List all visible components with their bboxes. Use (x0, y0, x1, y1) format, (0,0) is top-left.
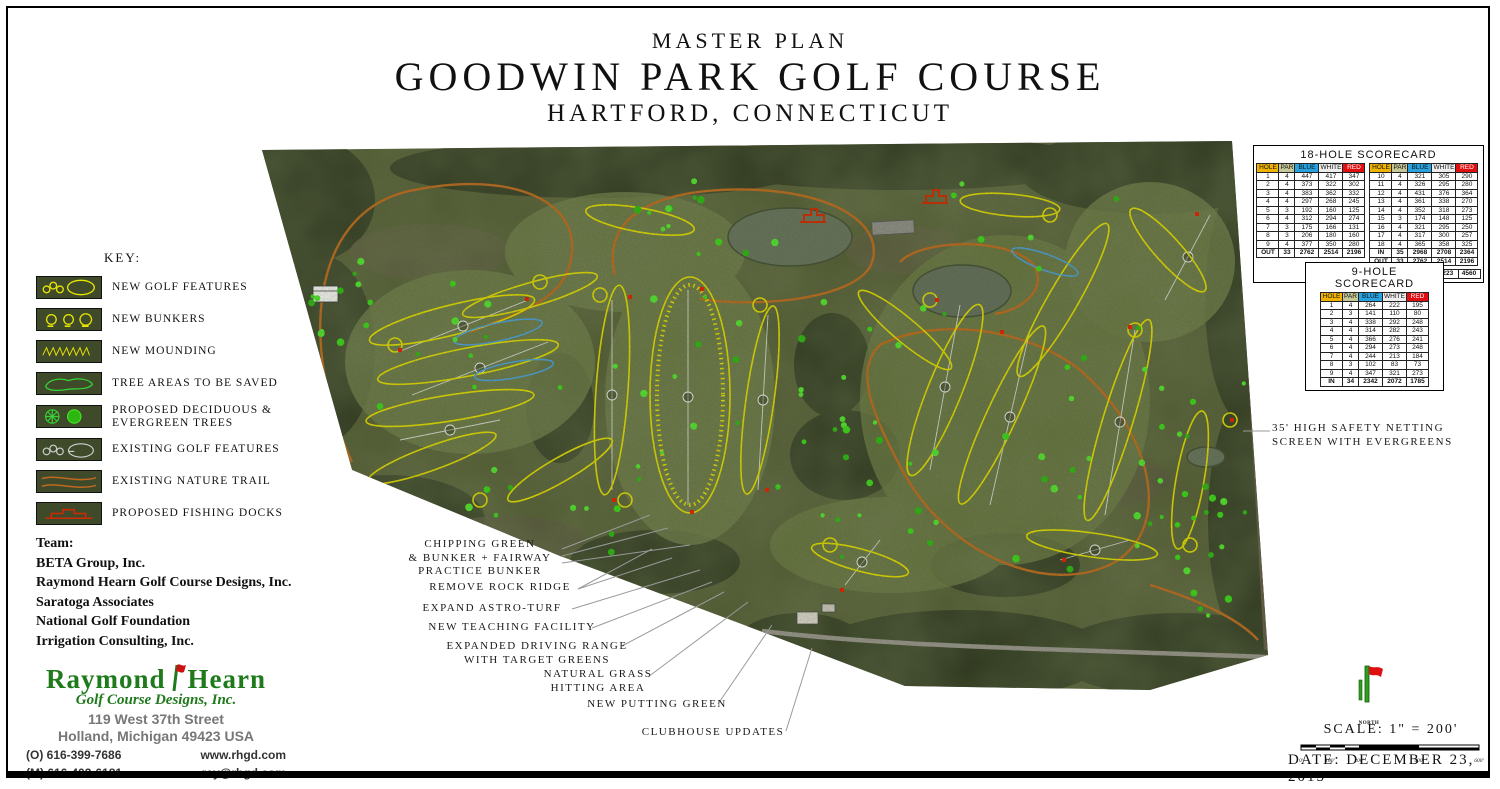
sc-cell: 4 (1343, 352, 1359, 361)
map-callout-line: NEW PUTTING GREEN (587, 698, 727, 712)
scorecard-18-title: 18-HOLE SCORECARD (1258, 149, 1479, 161)
legend-swatch-1 (36, 276, 102, 299)
sc-cell: 131 (1343, 223, 1365, 232)
sc-cell: 184 (1407, 352, 1429, 361)
golf-flag-icon (167, 662, 187, 692)
legend-label: NEW BUNKERS (112, 313, 297, 326)
legend-swatch-2 (36, 308, 102, 331)
sc-cell: 35 (1392, 249, 1408, 258)
sc-cell: 321 (1408, 223, 1432, 232)
sc-cell: 18 (1370, 240, 1392, 249)
scale-text: SCALE: 1" = 200' (1296, 722, 1486, 738)
sc-cell: 347 (1343, 172, 1365, 181)
sc-cell: 268 (1319, 198, 1343, 207)
sc-cell: 270 (1456, 198, 1478, 207)
sc-cell: 148 (1432, 215, 1456, 224)
sc-cell: 4 (1392, 232, 1408, 241)
sc-cell: 17 (1370, 232, 1392, 241)
legend-label: PROPOSED FISHING DOCKS (112, 507, 297, 520)
sc-row: 184365358325 (1370, 240, 1478, 249)
legend-swatch-6 (36, 438, 102, 461)
legend-row: PROPOSED DECIDUOUS & EVERGREEN TREES (36, 404, 316, 429)
map-callout-line: REMOVE ROCK RIDGE (429, 581, 571, 595)
sc-cell: 276 (1383, 335, 1407, 344)
sc-cell: 8 (1257, 232, 1279, 241)
sc-cell: 326 (1408, 181, 1432, 190)
sc-cell: 318 (1432, 206, 1456, 215)
sc-header-cell: PAR (1279, 164, 1295, 173)
sc-cell: 364 (1456, 189, 1478, 198)
sc-cell: 192 (1295, 206, 1319, 215)
legend-row: EXISTING NATURE TRAIL (36, 470, 316, 493)
sc-cell: 280 (1343, 240, 1365, 249)
email-link[interactable]: ray@rhgd.com (202, 766, 286, 781)
sc-row: 34338292248 (1321, 318, 1429, 327)
sc-cell: 166 (1319, 223, 1343, 232)
map-callout-line: CLUBHOUSE UPDATES (642, 726, 785, 740)
sc-cell: 4 (1343, 327, 1359, 336)
sc-cell: 174 (1408, 215, 1432, 224)
sc-cell: 5 (1321, 335, 1343, 344)
sc-row: 114326295280 (1370, 181, 1478, 190)
logo-address-line1: 119 West 37th Street (26, 711, 286, 728)
sc-header-cell: WHITE (1319, 164, 1343, 173)
sc-cell: 280 (1456, 181, 1478, 190)
map-callout: CHIPPING GREEN& BUNKER + FAIRWAYPRACTICE… (409, 538, 552, 579)
tree-dot (381, 525, 388, 532)
sc-row: 73175166131 (1257, 223, 1365, 232)
logo-contacts-row1: (O) 616-399-7686 www.rhgd.com (26, 748, 286, 763)
sc-row: 14264222195 (1321, 301, 1429, 310)
map-callout: REMOVE ROCK RIDGE (429, 581, 571, 595)
designer-logo-block: Raymond Hearn Golf Course Designs, Inc. … (26, 662, 286, 781)
sc-cell: 273 (1407, 369, 1429, 378)
sc-cell: 4 (1343, 301, 1359, 310)
sc-cell: 365 (1408, 240, 1432, 249)
map-callout-line: & BUNKER + FAIRWAY (409, 552, 552, 566)
sc-cell: 9 (1257, 240, 1279, 249)
sc-cell: 300 (1432, 232, 1456, 241)
plan-date: DATE: DECEMBER 23, 2015 (1288, 752, 1500, 786)
logo-address: 119 West 37th Street Holland, Michigan 4… (26, 711, 286, 745)
sc-cell: 295 (1432, 223, 1456, 232)
sc-cell: 4 (1392, 189, 1408, 198)
sc-cell: 294 (1319, 215, 1343, 224)
team-heading: Team: (36, 534, 292, 554)
sc-header-cell: BLUE (1359, 293, 1383, 302)
sc-cell: 332 (1343, 189, 1365, 198)
map-callout: NEW PUTTING GREEN (587, 698, 727, 712)
sc-cell: 4 (1279, 181, 1295, 190)
sc-cell: 1 (1321, 301, 1343, 310)
map-callout-line: WITH TARGET GREENS (446, 654, 627, 668)
sc-cell: 180 (1319, 232, 1343, 241)
netting-note-line2: SCREEN WITH EVERGREENS (1272, 435, 1453, 449)
sc-cell: 248 (1407, 344, 1429, 353)
sc-cell: 3 (1343, 361, 1359, 370)
sc-cell: 222 (1383, 301, 1407, 310)
sc-cell: 141 (1359, 310, 1383, 319)
plan-type-title: MASTER PLAN (0, 28, 1500, 54)
sc-table: HOLEPARBLUEWHITERED104321305290114326295… (1369, 163, 1478, 266)
map-callout: EXPAND ASTRO-TURF (422, 602, 561, 616)
sc-row: 2314111080 (1321, 310, 1429, 319)
map-callout-line: EXPAND ASTRO-TURF (422, 602, 561, 616)
sc-header-cell: HOLE (1370, 164, 1392, 173)
sc-row: IN35296827082364 (1370, 249, 1478, 258)
sc-cell: 4560 (1458, 270, 1480, 279)
title-block: MASTER PLAN GOODWIN PARK GOLF COURSE HAR… (0, 28, 1500, 128)
sc-header-cell: WHITE (1432, 164, 1456, 173)
sc-cell: 290 (1456, 172, 1478, 181)
sc-header-row: HOLEPARBLUEWHITERED (1370, 164, 1478, 173)
sc-cell: 243 (1407, 327, 1429, 336)
team-member: Raymond Hearn Golf Course Designs, Inc. (36, 573, 292, 593)
logo-name-left: Raymond (46, 666, 166, 692)
sc-cell: 2762 (1295, 249, 1319, 258)
sc-cell: 7 (1257, 223, 1279, 232)
team-member: Irrigation Consulting, Inc. (36, 632, 292, 652)
sc-row: 64312294274 (1257, 215, 1365, 224)
sc-cell: 2196 (1456, 257, 1478, 266)
map-callout-line: HITTING AREA (544, 682, 653, 696)
legend-swatch-7 (36, 470, 102, 493)
sc-cell: 338 (1359, 318, 1383, 327)
sc-cell: 376 (1432, 189, 1456, 198)
sc-cell: 347 (1359, 369, 1383, 378)
sc-header-row: HOLEPARBLUEWHITERED (1257, 164, 1365, 173)
legend-swatch-8 (36, 502, 102, 525)
sc-cell: 3 (1257, 189, 1279, 198)
sc-cell: 366 (1359, 335, 1383, 344)
sc-cell: 4 (1321, 327, 1343, 336)
sc-cell: 4 (1279, 215, 1295, 224)
sc-cell: 245 (1343, 198, 1365, 207)
sc-cell: 13 (1370, 198, 1392, 207)
logo-name-right: Hearn (188, 666, 267, 692)
sc-cell: 4 (1257, 198, 1279, 207)
sc-cell: 2072 (1383, 378, 1407, 387)
netting-note-line1: 35' HIGH SAFETY NETTING (1272, 421, 1453, 435)
sc-cell: 4 (1343, 335, 1359, 344)
sc-header-cell: HOLE (1321, 293, 1343, 302)
sc-header-cell: RED (1456, 164, 1478, 173)
sc-cell: 10 (1370, 172, 1392, 181)
sc-cell: 295 (1432, 181, 1456, 190)
sc-cell: 1 (1257, 172, 1279, 181)
sc-row: 14447417347 (1257, 172, 1365, 181)
sc-cell: 292 (1383, 318, 1407, 327)
sc-cell: 4 (1343, 318, 1359, 327)
sc-row: 124431376364 (1370, 189, 1478, 198)
sc-cell: 12 (1370, 189, 1392, 198)
legend-label: TREE AREAS TO BE SAVED (112, 377, 297, 390)
sc-cell: 5 (1257, 206, 1279, 215)
sc-cell: 321 (1383, 369, 1407, 378)
sc-row: 94347321273 (1321, 369, 1429, 378)
legend: KEY: NEW GOLF FEATURESNEW BUNKERSNEW MOU… (36, 250, 316, 534)
logo-subtitle: Golf Course Designs, Inc. (26, 692, 286, 709)
legend-row: NEW MOUNDING (36, 340, 316, 363)
sc-row: 144352318273 (1370, 206, 1478, 215)
legend-label: EXISTING NATURE TRAIL (112, 475, 297, 488)
sc-cell: 6 (1321, 344, 1343, 353)
sc-cell: 297 (1295, 198, 1319, 207)
legend-swatch-4 (36, 372, 102, 395)
sc-cell: 33 (1279, 249, 1295, 258)
sc-cell: 160 (1319, 206, 1343, 215)
sc-cell: 241 (1407, 335, 1429, 344)
sc-row: 134361338270 (1370, 198, 1478, 207)
sc-header-cell: BLUE (1295, 164, 1319, 173)
sc-cell: 213 (1383, 352, 1407, 361)
sc-cell: 2514 (1319, 249, 1343, 258)
north-arrow: NORTH (1352, 664, 1386, 726)
sc-cell: 273 (1456, 206, 1478, 215)
sc-cell: 4 (1279, 189, 1295, 198)
sc-cell: 447 (1295, 172, 1319, 181)
sc-cell: 3 (1279, 206, 1295, 215)
sc-cell: 257 (1456, 232, 1478, 241)
sc-row: 54366276241 (1321, 335, 1429, 344)
sc-cell: 361 (1408, 198, 1432, 207)
sc-cell: 322 (1319, 181, 1343, 190)
sc-cell: 73 (1407, 361, 1429, 370)
office-phone: (O) 616-399-7686 (26, 748, 121, 763)
course-name-title: GOODWIN PARK GOLF COURSE (0, 54, 1500, 100)
scorecard-18-back: HOLEPARBLUEWHITERED104321305290114326295… (1369, 163, 1480, 266)
sc-row: 53192160125 (1257, 206, 1365, 215)
sc-cell: 125 (1343, 206, 1365, 215)
team-members: BETA Group, Inc.Raymond Hearn Golf Cours… (36, 554, 292, 652)
logo-contacts-row2: (M) 616-403-6181 ray@rhgd.com (26, 766, 286, 781)
sc-cell: 4 (1279, 240, 1295, 249)
sc-header-cell: BLUE (1408, 164, 1432, 173)
sc-row: 831028373 (1321, 361, 1429, 370)
sc-row: 174317300257 (1370, 232, 1478, 241)
mobile-phone: (M) 616-403-6181 (26, 766, 122, 781)
sc-cell: 206 (1295, 232, 1319, 241)
map-callout-line: NATURAL GRASS (544, 668, 653, 682)
sc-row: 94377350280 (1257, 240, 1365, 249)
sc-header-cell: WHITE (1383, 293, 1407, 302)
sc-cell: 383 (1295, 189, 1319, 198)
scorecard-9-table: HOLEPARBLUEWHITERED142642221952314111080… (1320, 292, 1429, 387)
legend-row: PROPOSED FISHING DOCKS (36, 502, 316, 525)
team-member: BETA Group, Inc. (36, 554, 292, 574)
sc-cell: 362 (1319, 189, 1343, 198)
sc-cell: 4 (1392, 198, 1408, 207)
sc-row: 44297268245 (1257, 198, 1365, 207)
sc-cell: 4 (1392, 172, 1408, 181)
legend-row: NEW GOLF FEATURES (36, 276, 316, 299)
sc-cell: IN (1321, 378, 1343, 387)
sc-cell: 317 (1408, 232, 1432, 241)
legend-swatch-3 (36, 340, 102, 363)
sc-cell: 314 (1359, 327, 1383, 336)
team-member: National Golf Foundation (36, 612, 292, 632)
sc-row: OUT33276225142196 (1257, 249, 1365, 258)
sc-header-cell: RED (1343, 164, 1365, 173)
sc-cell: 248 (1407, 318, 1429, 327)
sc-cell: 4 (1392, 181, 1408, 190)
sc-cell: 294 (1359, 344, 1383, 353)
north-flag-icon (1352, 664, 1386, 716)
sc-cell: 431 (1408, 189, 1432, 198)
sc-cell: 2 (1321, 310, 1343, 319)
sc-cell: 7 (1321, 352, 1343, 361)
sc-row: 64294273248 (1321, 344, 1429, 353)
map-callout: EXPANDED DRIVING RANGEWITH TARGET GREENS (446, 640, 627, 667)
sc-cell: 16 (1370, 223, 1392, 232)
sc-cell: 4 (1343, 369, 1359, 378)
legend-row: TREE AREAS TO BE SAVED (36, 372, 316, 395)
sc-cell: 417 (1319, 172, 1343, 181)
map-callout-line: EXPANDED DRIVING RANGE (446, 640, 627, 654)
safety-netting-note: 35' HIGH SAFETY NETTING SCREEN WITH EVER… (1272, 421, 1453, 449)
scorecard-18-front: HOLEPARBLUEWHITERED144474173472437332230… (1256, 163, 1365, 258)
sc-cell: 102 (1359, 361, 1383, 370)
legend-label: EXISTING GOLF FEATURES (112, 443, 297, 456)
sc-cell: 160 (1343, 232, 1365, 241)
legend-swatch-5 (36, 405, 102, 428)
sc-cell: 352 (1408, 206, 1432, 215)
map-callout: NATURAL GRASSHITTING AREA (544, 668, 653, 695)
sc-cell: 2364 (1456, 249, 1478, 258)
sc-cell: 11 (1370, 181, 1392, 190)
sc-cell: 4 (1279, 172, 1295, 181)
sc-cell: 4 (1392, 240, 1408, 249)
sc-cell: 2342 (1359, 378, 1383, 387)
team-member: Saratoga Associates (36, 593, 292, 613)
sc-row: 153174148125 (1370, 215, 1478, 224)
sc-cell: 4 (1343, 344, 1359, 353)
sc-cell: 80 (1407, 310, 1429, 319)
map-callout-line: NEW TEACHING FACILITY (428, 621, 595, 635)
legend-label: PROPOSED DECIDUOUS & EVERGREEN TREES (112, 404, 297, 429)
sc-cell: 9 (1321, 369, 1343, 378)
sc-cell: 4 (1279, 198, 1295, 207)
sc-cell: 321 (1408, 172, 1432, 181)
sc-cell: 15 (1370, 215, 1392, 224)
sc-cell: 2968 (1408, 249, 1432, 258)
sc-row: IN34234220721785 (1321, 378, 1429, 387)
sc-header-cell: PAR (1343, 293, 1359, 302)
legend-row: NEW BUNKERS (36, 308, 316, 331)
sc-cell: 244 (1359, 352, 1383, 361)
sc-table: HOLEPARBLUEWHITERED142642221952314111080… (1320, 292, 1429, 387)
sc-cell: 3 (1279, 223, 1295, 232)
map-callout: NEW TEACHING FACILITY (428, 621, 595, 635)
map-callout-line: PRACTICE BUNKER (409, 565, 552, 579)
sc-row: 34383362332 (1257, 189, 1365, 198)
location-title: HARTFORD, CONNECTICUT (0, 100, 1500, 128)
sc-cell: IN (1370, 249, 1392, 258)
sc-cell: 125 (1456, 215, 1478, 224)
sc-cell: 6 (1257, 215, 1279, 224)
sc-cell: 305 (1432, 172, 1456, 181)
sc-cell: 274 (1343, 215, 1365, 224)
legend-row: EXISTING GOLF FEATURES (36, 438, 316, 461)
sc-cell: 83 (1383, 361, 1407, 370)
sc-cell: 3 (1392, 215, 1408, 224)
sc-row: 44314282243 (1321, 327, 1429, 336)
sc-cell: 358 (1432, 240, 1456, 249)
sc-cell: 1785 (1407, 378, 1429, 387)
sc-cell: 2 (1257, 181, 1279, 190)
website-link[interactable]: www.rhgd.com (200, 748, 286, 763)
sc-cell: 175 (1295, 223, 1319, 232)
sc-cell: 264 (1359, 301, 1383, 310)
scorecard-9-title: 9-HOLE SCORECARD (1310, 266, 1439, 290)
sc-table: HOLEPARBLUEWHITERED144474173472437332230… (1256, 163, 1365, 258)
sc-cell: 3 (1279, 232, 1295, 241)
logo-name: Raymond Hearn (26, 662, 286, 692)
sc-cell: 338 (1432, 198, 1456, 207)
sc-cell: 4 (1392, 206, 1408, 215)
sc-cell: 350 (1319, 240, 1343, 249)
sc-row: 74244213184 (1321, 352, 1429, 361)
sc-cell: 2708 (1432, 249, 1456, 258)
map-terrain (225, 130, 1305, 700)
sc-cell: OUT (1257, 249, 1279, 258)
sc-cell: 325 (1456, 240, 1478, 249)
sc-cell: 110 (1383, 310, 1407, 319)
sc-cell: 377 (1295, 240, 1319, 249)
sc-cell: 8 (1321, 361, 1343, 370)
sc-cell: 312 (1295, 215, 1319, 224)
legend-label: NEW MOUNDING (112, 345, 297, 358)
sc-cell: 14 (1370, 206, 1392, 215)
sc-header-row: HOLEPARBLUEWHITERED (1321, 293, 1429, 302)
sc-header-cell: PAR (1392, 164, 1408, 173)
sc-cell: 2196 (1343, 249, 1365, 258)
sc-row: 24373322302 (1257, 181, 1365, 190)
sc-cell: 373 (1295, 181, 1319, 190)
sc-cell: 273 (1383, 344, 1407, 353)
sc-cell: 195 (1407, 301, 1429, 310)
sc-cell: 3 (1321, 318, 1343, 327)
sc-row: 83206180160 (1257, 232, 1365, 241)
logo-address-line2: Holland, Michigan 49423 USA (26, 728, 286, 745)
map-callout: CLUBHOUSE UPDATES (642, 726, 785, 740)
sc-cell: 250 (1456, 223, 1478, 232)
legend-heading: KEY: (104, 250, 316, 266)
sc-cell: 34 (1343, 378, 1359, 387)
sc-cell: 4 (1392, 223, 1408, 232)
sc-row: 164321295250 (1370, 223, 1478, 232)
scorecard-9-hole: 9-HOLE SCORECARD HOLEPARBLUEWHITERED1426… (1305, 262, 1444, 391)
sc-cell: 282 (1383, 327, 1407, 336)
sc-header-cell: HOLE (1257, 164, 1279, 173)
legend-items: NEW GOLF FEATURESNEW BUNKERSNEW MOUNDING… (36, 276, 316, 525)
sc-header-cell: RED (1407, 293, 1429, 302)
team-block: Team: BETA Group, Inc.Raymond Hearn Golf… (36, 534, 292, 651)
map-callout-line: CHIPPING GREEN (409, 538, 552, 552)
sc-cell: 302 (1343, 181, 1365, 190)
sc-row: 104321305290 (1370, 172, 1478, 181)
legend-label: NEW GOLF FEATURES (112, 281, 297, 294)
sc-cell: 3 (1343, 310, 1359, 319)
